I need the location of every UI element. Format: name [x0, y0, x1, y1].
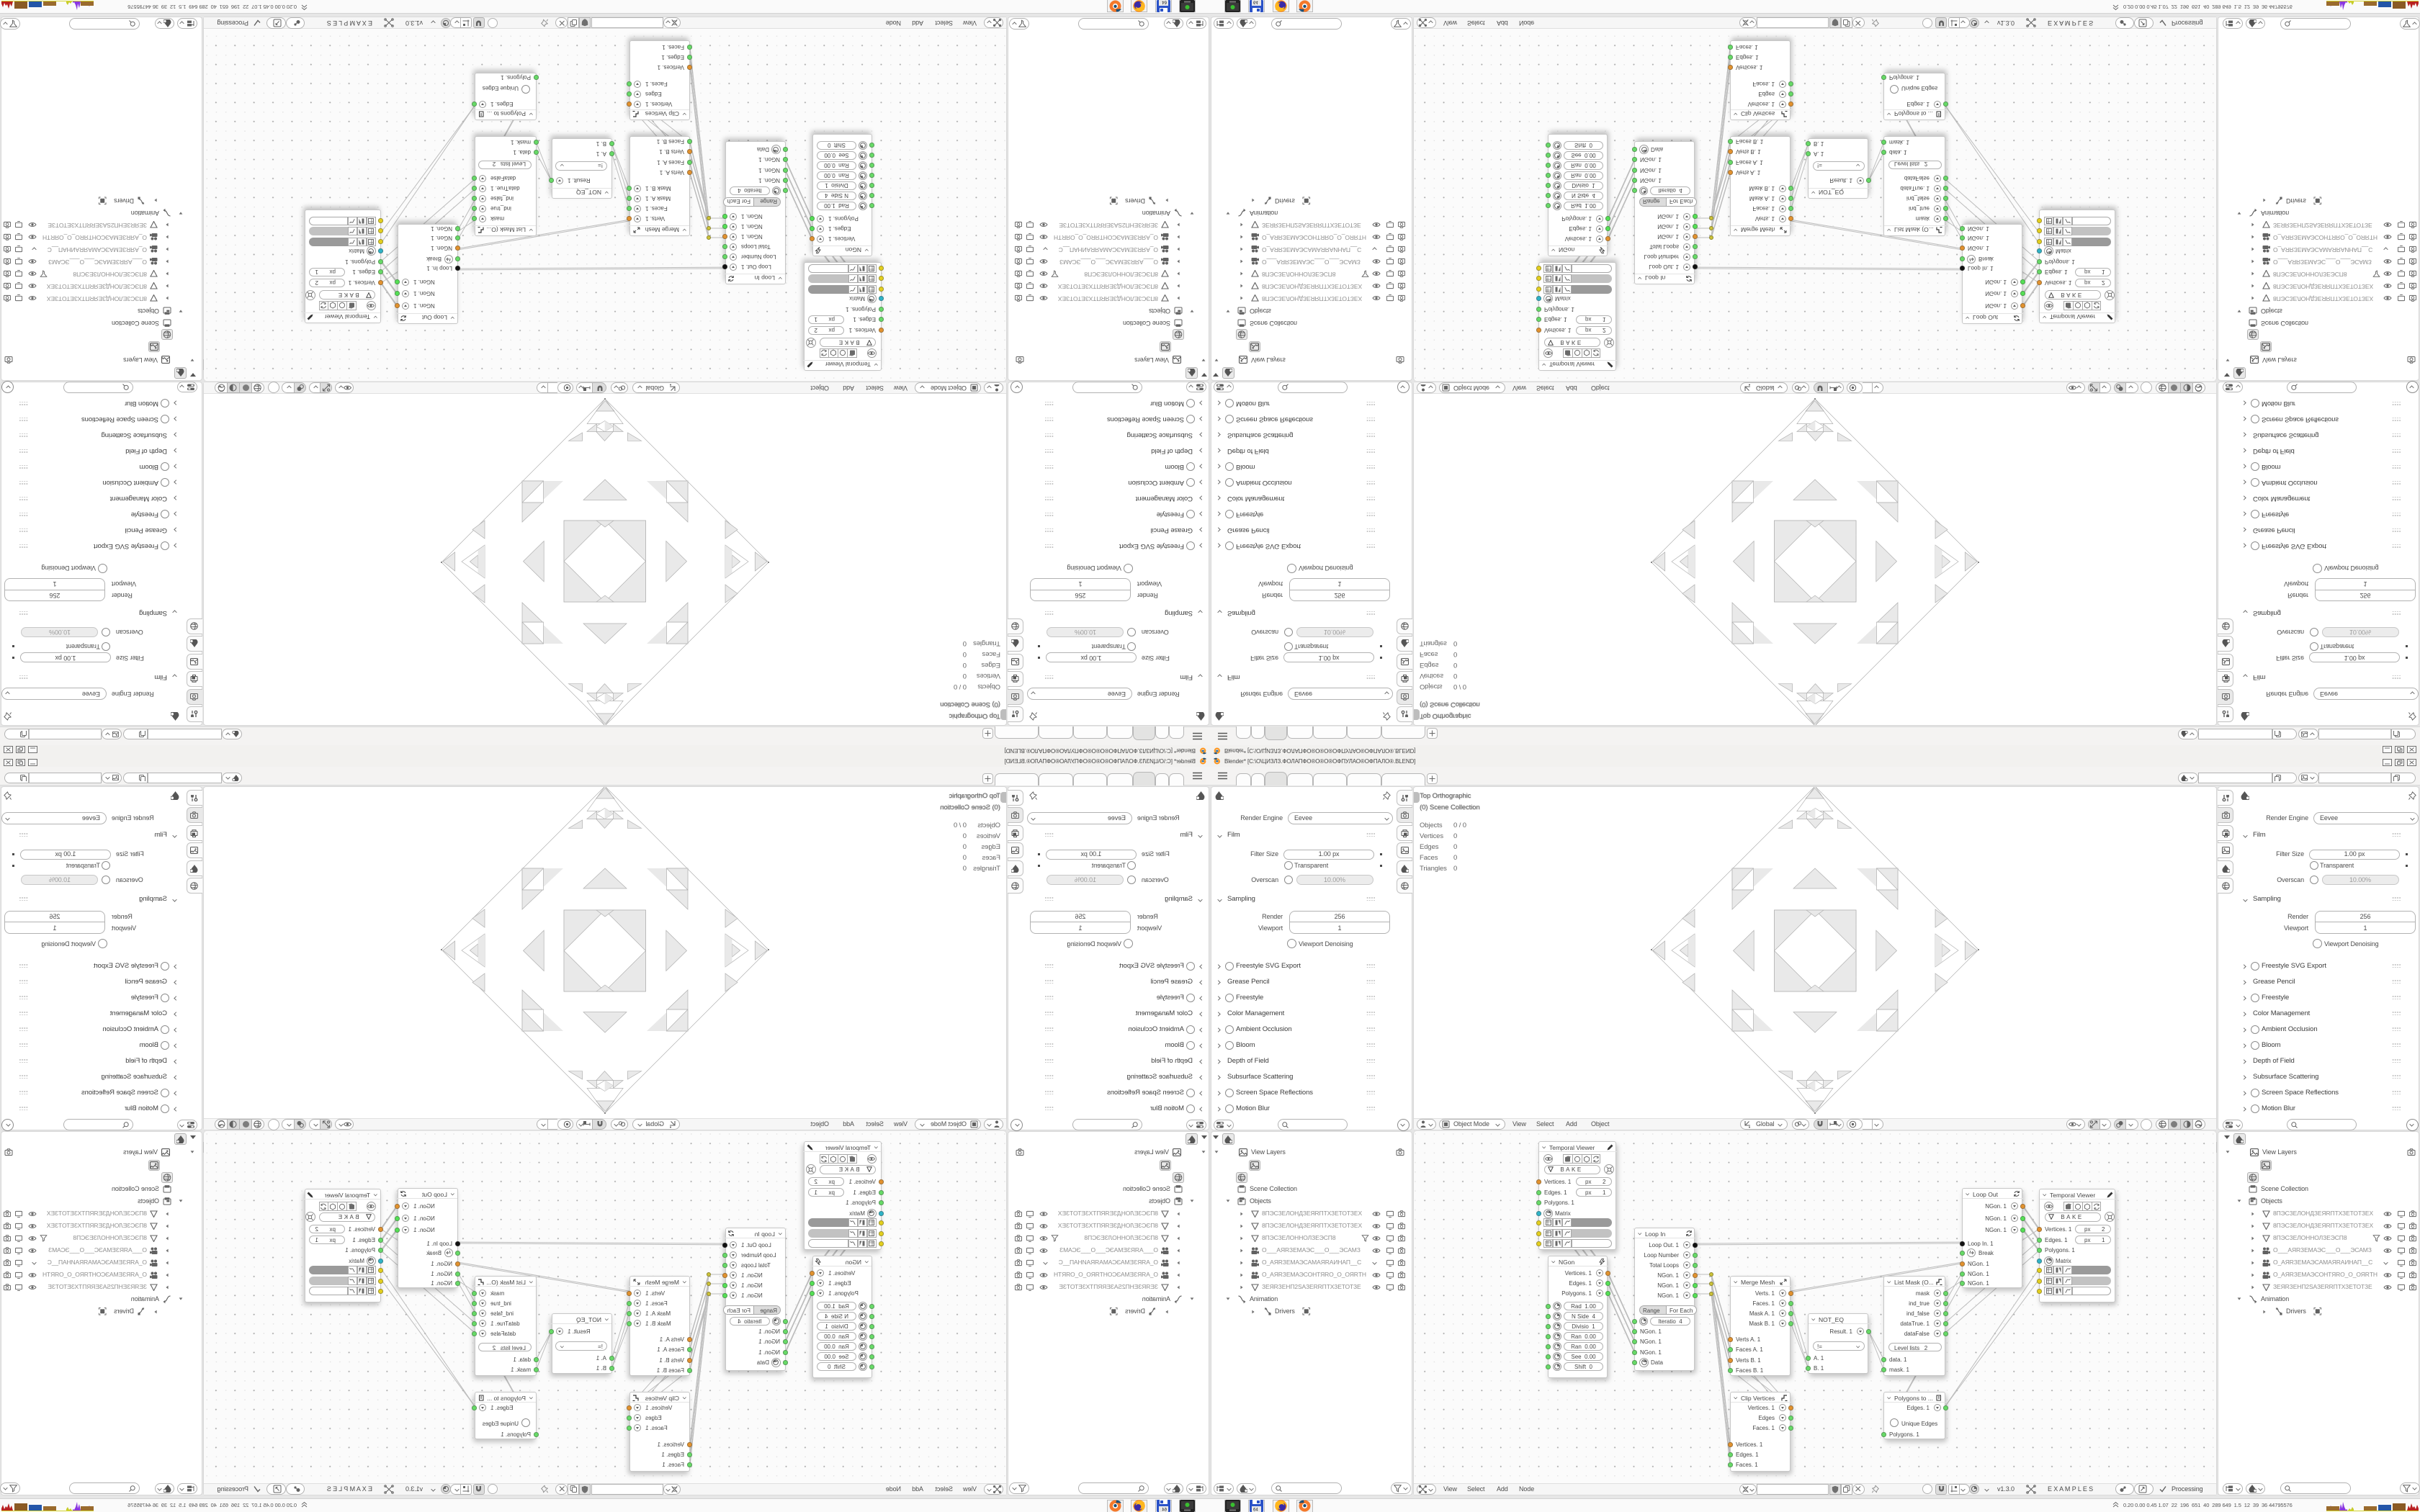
svg-text:64: 64 [1162, 0, 1167, 4]
svg-text:64: 64 [1253, 1508, 1258, 1512]
svg-text:64: 64 [1253, 0, 1258, 4]
svg-text:64: 64 [1162, 1508, 1167, 1512]
